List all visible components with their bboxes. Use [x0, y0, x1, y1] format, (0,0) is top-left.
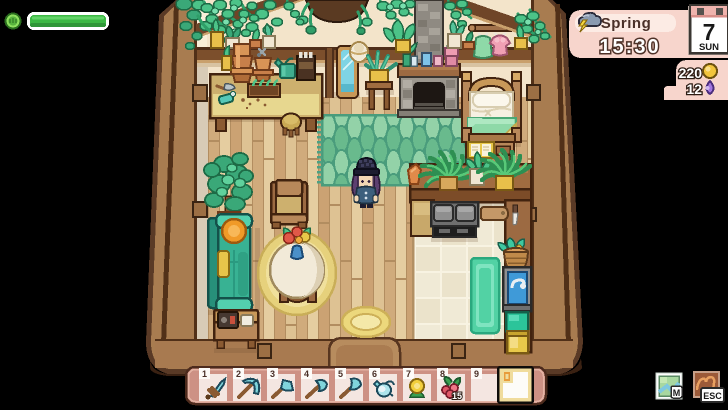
svg-text:M: M	[673, 388, 681, 398]
svg-text:SUN: SUN	[699, 42, 719, 53]
svg-text:5: 5	[338, 369, 343, 379]
svg-text:15:30: 15:30	[599, 36, 660, 58]
svg-text:4: 4	[304, 369, 309, 379]
svg-text:9: 9	[474, 369, 479, 379]
svg-text:15: 15	[452, 391, 462, 401]
svg-text:ESC: ESC	[703, 391, 722, 401]
svg-text:6: 6	[372, 369, 377, 379]
svg-text:7: 7	[406, 369, 411, 379]
svg-text:1: 1	[202, 369, 207, 379]
svg-text:Spring: Spring	[601, 15, 652, 32]
svg-text:3: 3	[270, 369, 275, 379]
svg-text:12: 12	[686, 81, 702, 97]
svg-text:220: 220	[679, 65, 703, 81]
svg-text:2: 2	[236, 369, 241, 379]
